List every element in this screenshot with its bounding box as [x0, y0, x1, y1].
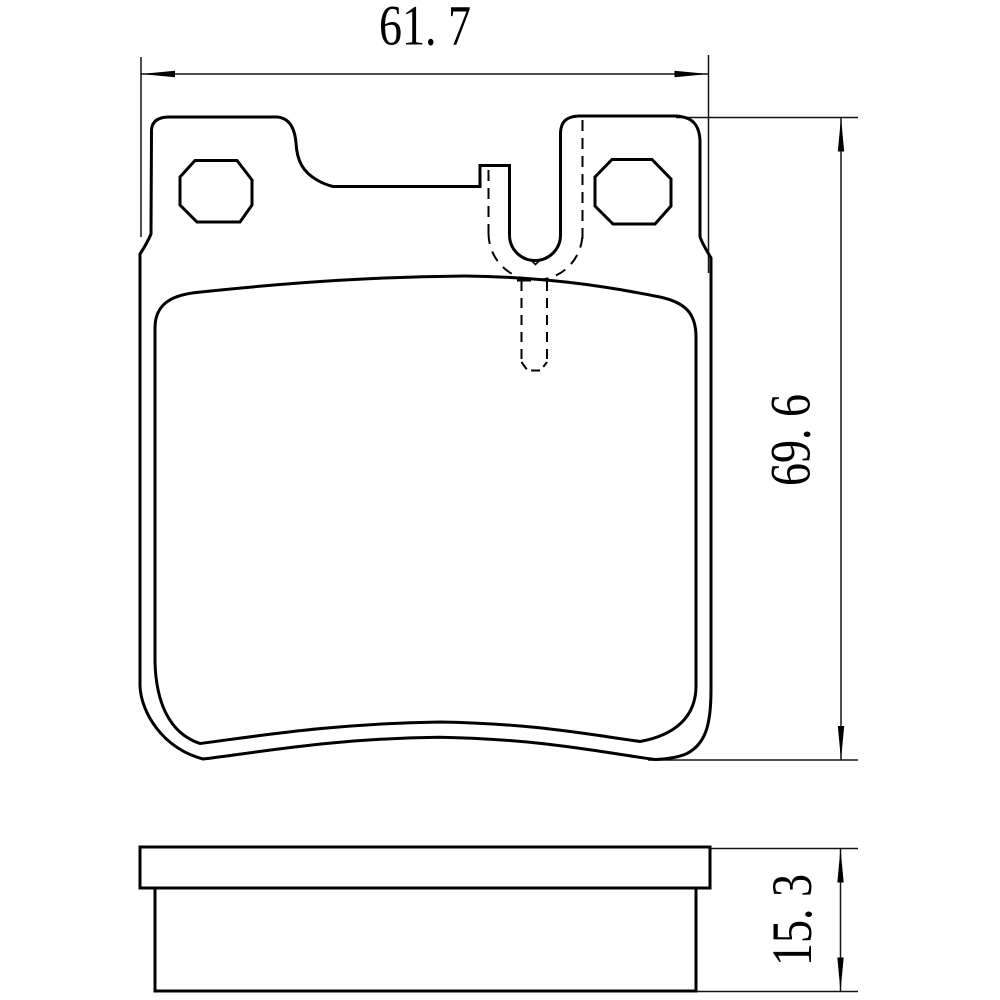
svg-text:69. 6: 69. 6	[760, 394, 823, 486]
svg-text:61. 7: 61. 7	[379, 0, 471, 58]
svg-text:15. 3: 15. 3	[761, 874, 824, 966]
